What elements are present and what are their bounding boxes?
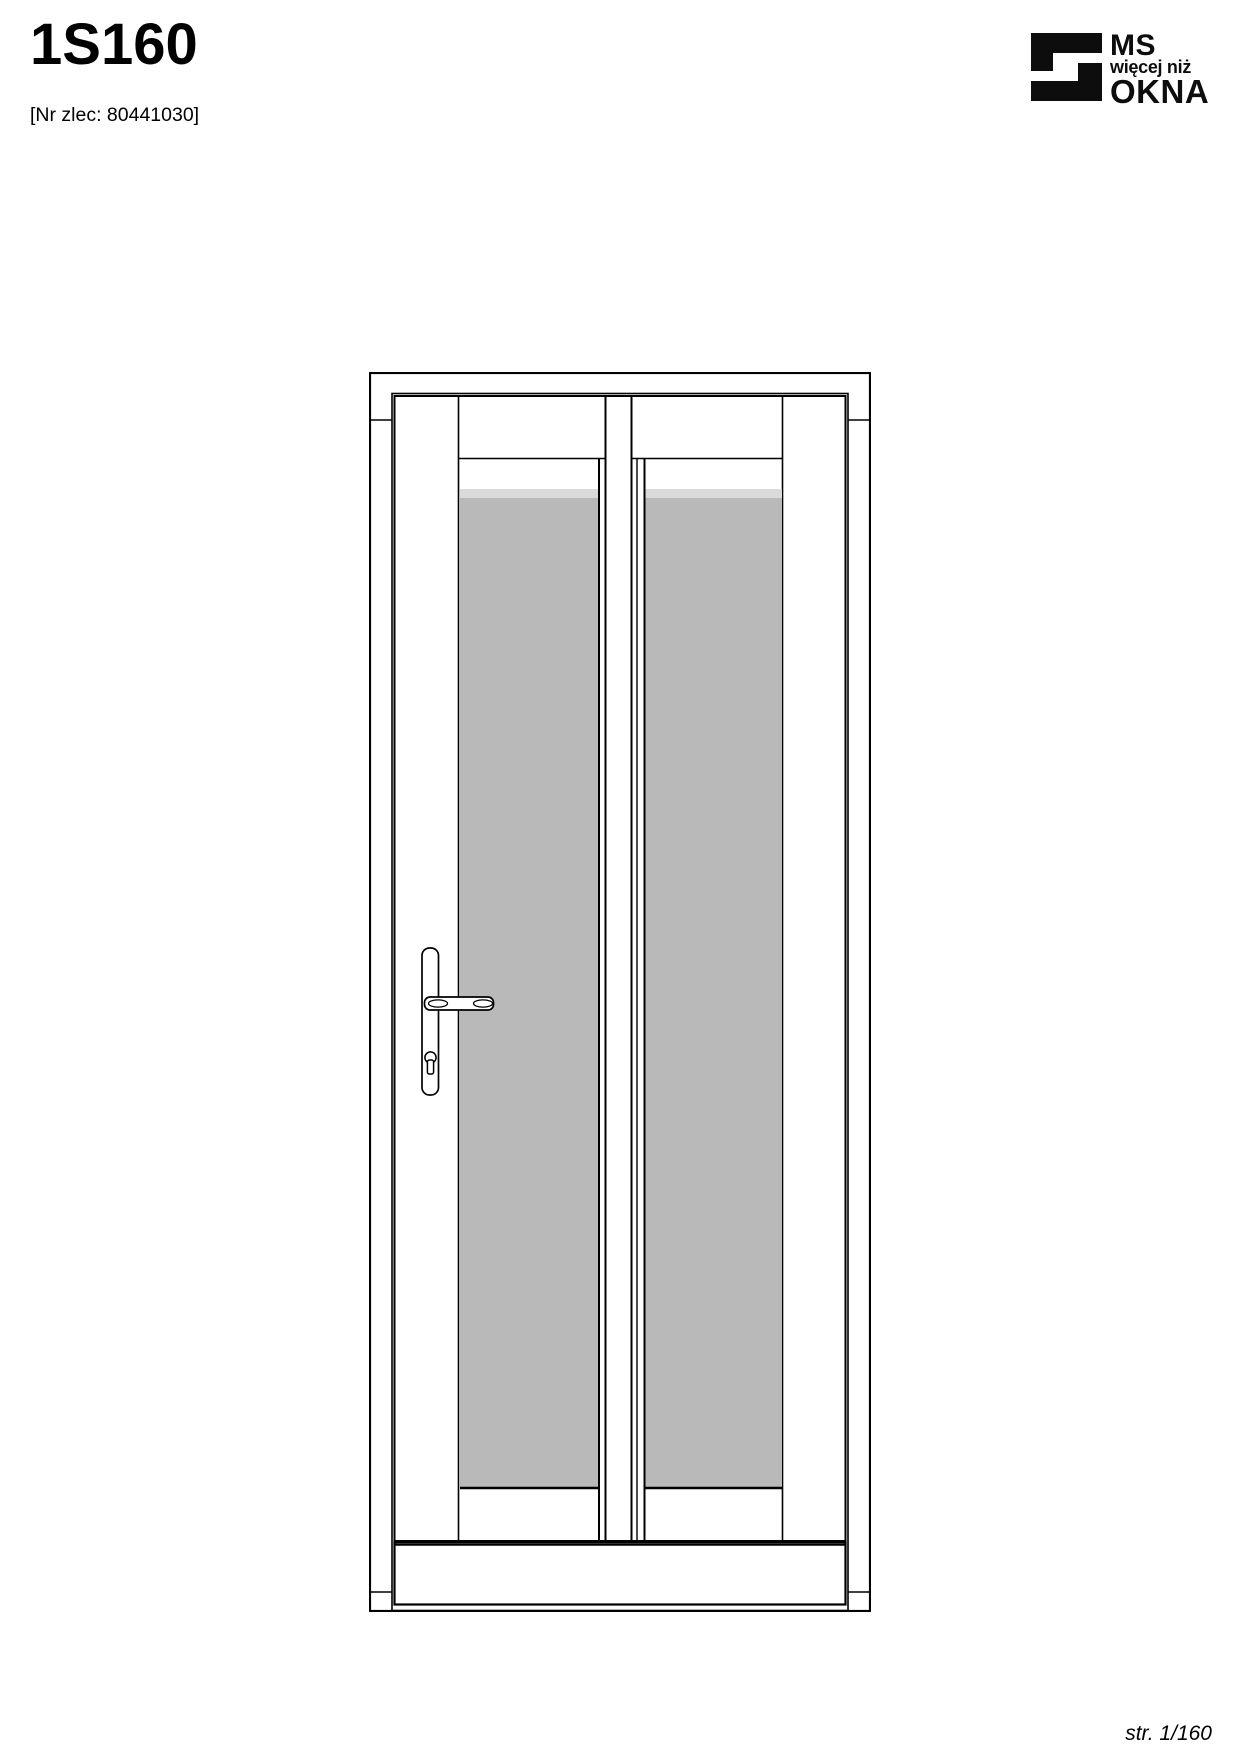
center-mullion [606,396,632,1541]
page-title: 1S160 [30,16,198,74]
door-drawing [369,372,871,1612]
glazing-left-highlight [460,489,598,498]
logo-text-okna: OKNA [1110,77,1209,107]
glazing-left [460,489,598,1489]
brand-logo: MS więcej niż OKNA [1031,33,1209,107]
logo-text-ms: MS [1110,33,1209,58]
handle-lever-detail-left [429,1000,448,1007]
logo-mark-icon [1031,33,1102,101]
handle-lever-detail-right [474,1000,493,1007]
logo-wordmark: MS więcej niż OKNA [1110,33,1209,107]
keyhole-stem [427,1060,433,1074]
order-number: [Nr zlec: 80441030] [30,104,199,127]
glazing-right [646,489,783,1489]
door-technical-drawing [369,372,871,1612]
document-page: 1S160 [Nr zlec: 80441030] MS więcej niż … [0,0,1240,1755]
glazing-right-highlight [646,489,783,498]
threshold [395,1543,846,1605]
page-number: str. 1/160 [1125,1722,1212,1746]
